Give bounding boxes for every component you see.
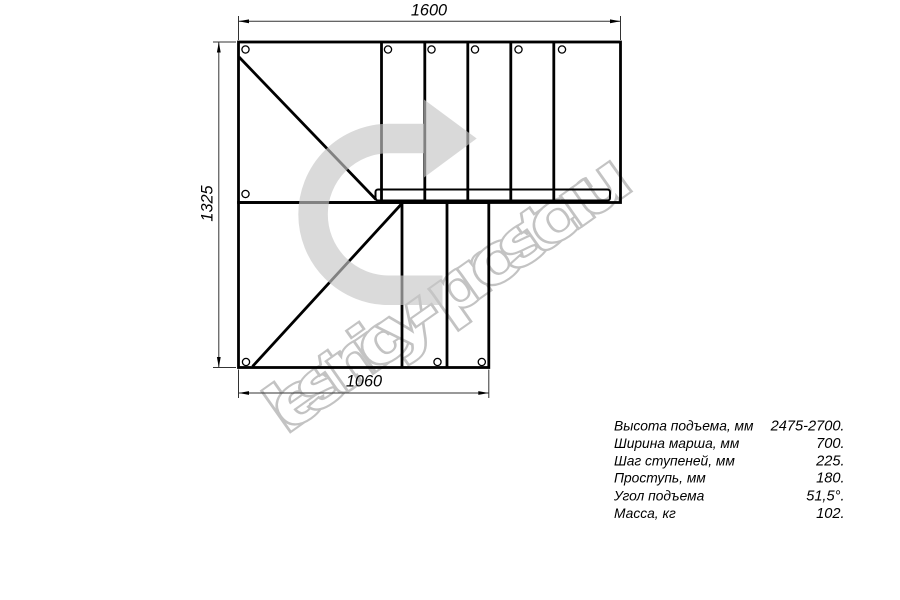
svg-text:225.: 225. — [815, 453, 844, 469]
svg-text:102.: 102. — [816, 506, 844, 522]
svg-text:Угол подъема: Угол подъема — [613, 489, 705, 504]
svg-text:1060: 1060 — [346, 373, 382, 391]
svg-text:Шаг ступеней, мм: Шаг ступеней, мм — [614, 453, 735, 468]
svg-text:51,5°.: 51,5°. — [806, 489, 844, 505]
svg-text:1325: 1325 — [199, 184, 217, 221]
svg-text:2475-2700.: 2475-2700. — [770, 418, 845, 434]
svg-text:180.: 180. — [816, 471, 844, 487]
svg-text:1600: 1600 — [411, 2, 447, 20]
svg-text:Проступь, мм: Проступь, мм — [614, 471, 706, 486]
svg-text:Ширина марша, мм: Ширина марша, мм — [614, 436, 740, 451]
svg-text:700.: 700. — [816, 436, 844, 452]
svg-text:Масса, кг: Масса, кг — [614, 506, 676, 521]
svg-text:Высота подъема, мм: Высота подъема, мм — [614, 418, 754, 433]
